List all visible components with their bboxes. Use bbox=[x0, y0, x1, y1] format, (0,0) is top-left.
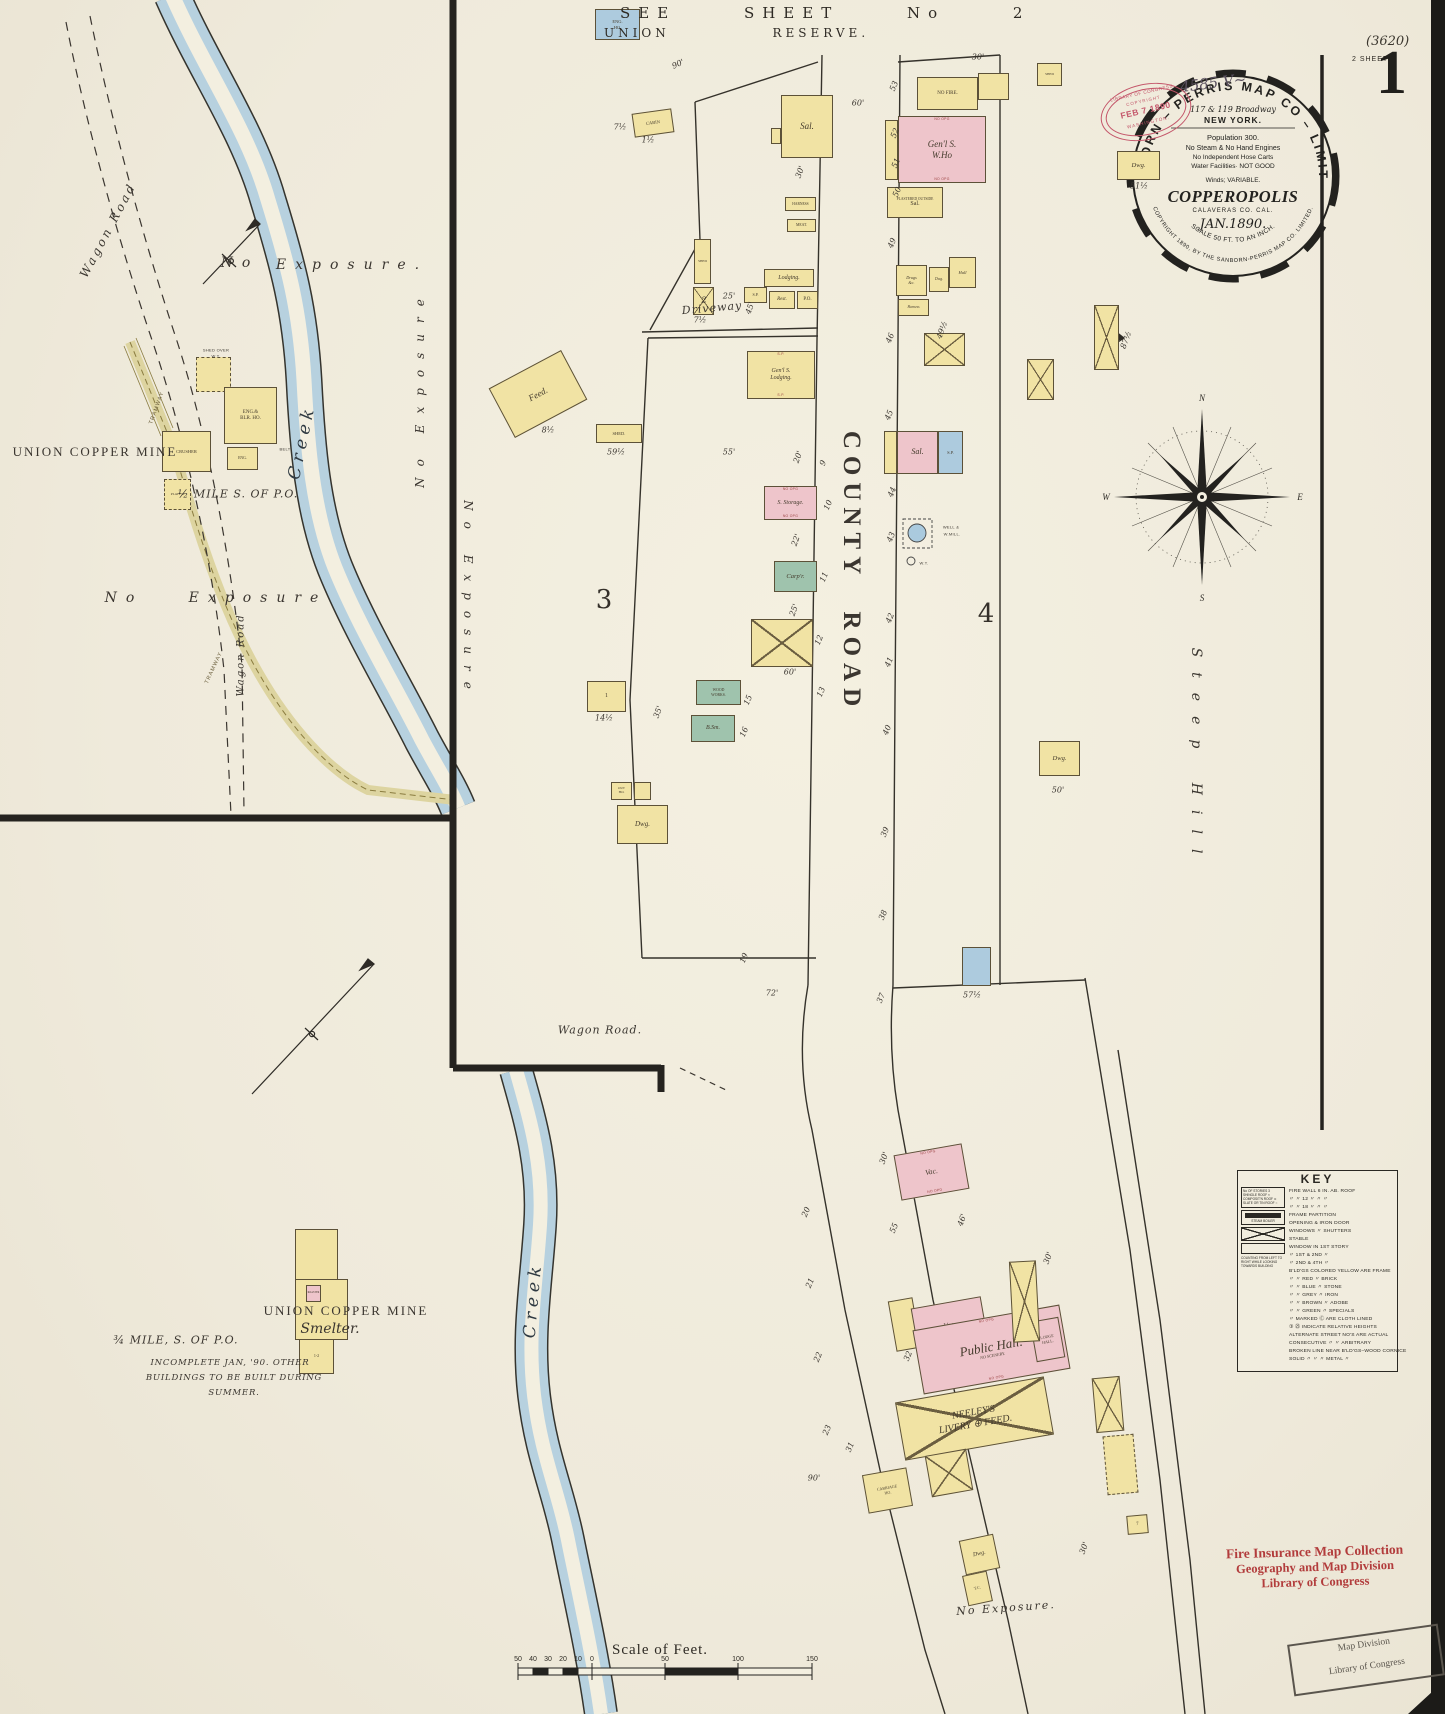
key-line: 〃 MARKED Ⓒ ARE CLOTH LINED bbox=[1289, 1316, 1406, 1324]
svg-text:117 & 119 Broadway: 117 & 119 Broadway bbox=[1190, 105, 1276, 114]
svg-text:COPPEROPOLIS: COPPEROPOLIS bbox=[1168, 187, 1299, 206]
svg-text:Population 300.: Population 300. bbox=[1207, 133, 1259, 142]
map-sheet: { "page": {"sheet_number":"1","sheets_no… bbox=[0, 0, 1445, 1714]
key-line: 〃 〃 BROWN 〃 ADOBE bbox=[1289, 1300, 1406, 1308]
scale-tick-label: 0 bbox=[590, 1656, 594, 1663]
key-left-item: No OF STORIES 3 SHINGLE ROOF × COMPOSIT'… bbox=[1241, 1187, 1285, 1208]
map-key-legend: KEY No OF STORIES 3 SHINGLE ROOF × COMPO… bbox=[1237, 1170, 1398, 1372]
key-text-column: FIRE WALL 6 IN. AB. ROOF〃 〃 12 〃 〃 〃〃 〃 … bbox=[1285, 1185, 1406, 1364]
north-arrow-small bbox=[1100, 334, 1124, 354]
key-line: ALTERNATE STREET NO'S ARE ACTUAL bbox=[1289, 1332, 1406, 1340]
key-line: 〃 〃 12 〃 〃 〃 bbox=[1289, 1196, 1406, 1204]
svg-text:E: E bbox=[1296, 492, 1303, 502]
north-arrow-lower bbox=[252, 959, 374, 1094]
creek-upper bbox=[172, 0, 458, 808]
key-counting-note: COUNTING FROM LEFT TO RIGHT WHILE LOOKIN… bbox=[1241, 1256, 1285, 1268]
sheet-edge bbox=[1322, 0, 1445, 1714]
svg-text:N: N bbox=[1198, 393, 1206, 403]
svg-text:COPYRIGHT 1890, BY THE SANBORN: COPYRIGHT 1890, BY THE SANBORN-PERRIS MA… bbox=[1151, 206, 1315, 264]
key-line: WINDOWS 〃 SHUTTERS bbox=[1289, 1228, 1406, 1236]
key-line: SOLID 〃 〃 〃 METAL 〃 bbox=[1289, 1356, 1406, 1364]
key-line: 〃 2ND & 4TH 〃 bbox=[1289, 1260, 1406, 1268]
sheet-number: 1 bbox=[1376, 38, 1407, 109]
scale-tick-label: 10 bbox=[574, 1656, 582, 1663]
svg-text:W: W bbox=[1102, 492, 1111, 502]
key-steam-boiler: STEAM BOILER bbox=[1241, 1210, 1285, 1225]
svg-text:JAN.1890.: JAN.1890. bbox=[1197, 217, 1267, 232]
key-line: 〃 〃 RED 〃 BRICK bbox=[1289, 1276, 1406, 1284]
key-line: 〃 〃 GREEN 〃 SPECIALS bbox=[1289, 1308, 1406, 1316]
scale-bar bbox=[518, 1663, 812, 1680]
svg-text:Water Facilities· NOT GOOD: Water Facilities· NOT GOOD bbox=[1191, 163, 1275, 170]
scale-caption: Scale of Feet. bbox=[612, 1642, 708, 1659]
scale-tick-label: 20 bbox=[559, 1656, 567, 1663]
road-lines bbox=[630, 55, 1205, 1714]
see-sheet-note: SEE SHEET No 2 bbox=[620, 4, 960, 22]
north-arrow-upper bbox=[203, 219, 260, 284]
key-window-symbol bbox=[1241, 1243, 1285, 1254]
key-symbol-column: No OF STORIES 3 SHINGLE ROOF × COMPOSIT'… bbox=[1241, 1185, 1285, 1364]
key-line: 〃 〃 GREY 〃 IRON bbox=[1289, 1292, 1406, 1300]
key-line: FIRE WALL 6 IN. AB. ROOF bbox=[1289, 1188, 1406, 1196]
key-line: CONSECUTIVE 〃 〃 ARBITRARY bbox=[1289, 1340, 1406, 1348]
key-line: BROKEN LINE NEAR B'LD'GS–WOOD CORNICE bbox=[1289, 1348, 1406, 1356]
key-line: WINDOW IN 1ST STORY bbox=[1289, 1244, 1406, 1252]
scale-tick-label: 40 bbox=[529, 1656, 537, 1663]
creek-lower bbox=[516, 1070, 601, 1714]
key-line: 〃 〃 18 〃 〃 〃 bbox=[1289, 1204, 1406, 1212]
wagon-road-dashes bbox=[66, 16, 726, 1090]
svg-text:S: S bbox=[1200, 593, 1205, 603]
svg-text:No Independent Hose Carts: No Independent Hose Carts bbox=[1193, 154, 1274, 161]
union-reserve-label: UNION RESERVE. bbox=[604, 26, 904, 40]
svg-text:NEW YORK.: NEW YORK. bbox=[1204, 115, 1262, 125]
loc-collection-stamp: Fire Insurance Map Collection Geography … bbox=[1179, 1540, 1445, 1593]
scale-tick-label: 30 bbox=[544, 1656, 552, 1663]
map-linework: N S E W SANBORN – PERRIS MAP CO – LIMITE… bbox=[0, 0, 1445, 1714]
scale-tick-label: 50 bbox=[661, 1656, 669, 1663]
key-line: STABLE bbox=[1289, 1236, 1406, 1244]
scale-tick-label: 150 bbox=[806, 1656, 818, 1663]
svg-text:No Steam & No Hand Engines: No Steam & No Hand Engines bbox=[1186, 145, 1281, 152]
svg-text:Winds; VARIABLE.: Winds; VARIABLE. bbox=[1206, 177, 1261, 184]
key-line: FRAME PARTITION bbox=[1289, 1212, 1406, 1220]
key-line: B'LD'GS COLORED YELLOW ARE FRAME bbox=[1289, 1268, 1406, 1276]
scale-tick-label: 50 bbox=[514, 1656, 522, 1663]
key-line: ③ ㉕ INDICATE RELATIVE HEIGHTS bbox=[1289, 1324, 1406, 1332]
svg-text:CALAVERAS CO. CAL.: CALAVERAS CO. CAL. bbox=[1193, 208, 1274, 214]
key-line: 〃 1ST & 2ND 〃 bbox=[1289, 1252, 1406, 1260]
compass-rose: N S E W bbox=[1102, 393, 1303, 603]
key-title: KEY bbox=[1241, 1173, 1394, 1185]
key-line: OPENING & IRON DOOR bbox=[1289, 1220, 1406, 1228]
key-line: 〃 〃 BLUE 〃 STONE bbox=[1289, 1284, 1406, 1292]
scale-tick-label: 100 bbox=[732, 1656, 744, 1663]
key-stable-symbol bbox=[1241, 1227, 1285, 1241]
